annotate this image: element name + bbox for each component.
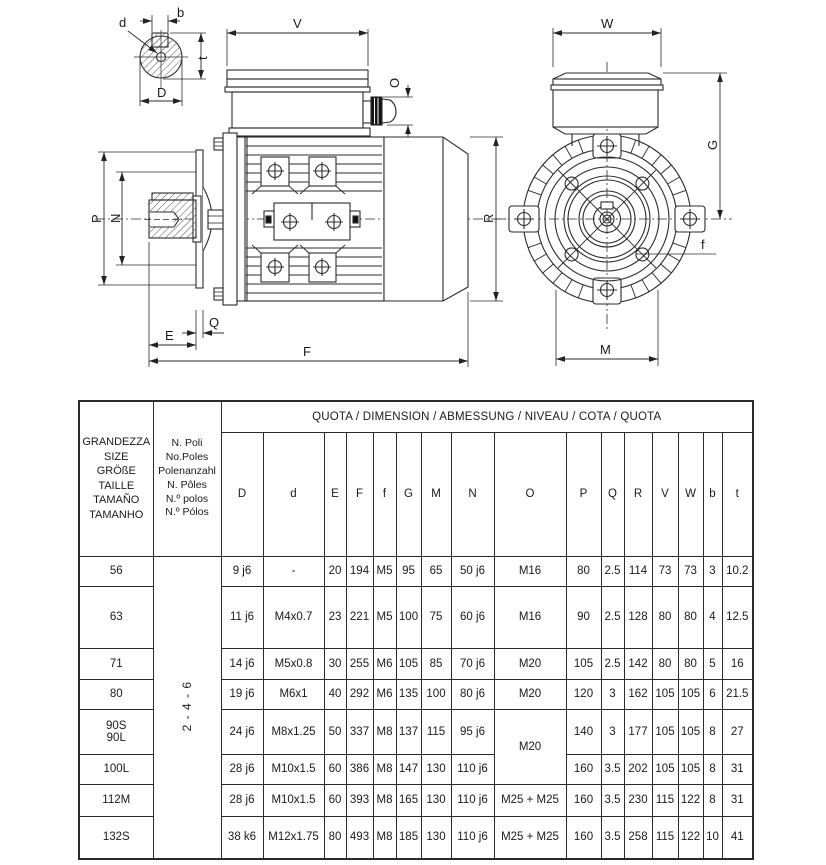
- table-cell: 73: [678, 556, 703, 586]
- col-header-F: F: [346, 432, 373, 556]
- table-cell: 185: [396, 816, 421, 859]
- table-cell: 230: [624, 784, 652, 816]
- table-cell: 11 j6: [221, 586, 263, 648]
- size-cell: 71: [79, 648, 153, 679]
- table-cell: M12x1.75: [263, 816, 324, 859]
- dim-label-b: b: [177, 5, 184, 20]
- table-cell: 2.5: [601, 556, 624, 586]
- table-cell: 255: [346, 648, 373, 679]
- size-cell: 132S: [79, 816, 153, 859]
- table-cell: 12.5: [722, 586, 753, 648]
- table-cell: 75: [421, 586, 451, 648]
- size-cell: 100L: [79, 754, 153, 784]
- cable-gland: [363, 97, 396, 125]
- table-cell: 105: [678, 754, 703, 784]
- table-cell: 41: [722, 816, 753, 859]
- table-cell: 9 j6: [221, 556, 263, 586]
- table-cell: 110 j6: [451, 816, 494, 859]
- table-cell: 65: [421, 556, 451, 586]
- table-cell: M16: [494, 586, 566, 648]
- table-cell: 24 j6: [221, 709, 263, 754]
- table-cell: 8: [703, 784, 722, 816]
- col-header-N: N: [451, 432, 494, 556]
- table-cell: 110 j6: [451, 784, 494, 816]
- table-cell: 3: [601, 679, 624, 709]
- table-cell: 31: [722, 784, 753, 816]
- table-cell: 23: [324, 586, 346, 648]
- table-cell: 4: [703, 586, 722, 648]
- table-cell: 122: [678, 784, 703, 816]
- table-cell: 177: [624, 709, 652, 754]
- motor-dimension-drawing: b d t D: [0, 0, 826, 398]
- dim-label-F: F: [303, 344, 311, 359]
- table-cell: M8: [373, 784, 396, 816]
- col-header-t: t: [722, 432, 753, 556]
- table-cell: 50 j6: [451, 556, 494, 586]
- table-cell: 105: [678, 679, 703, 709]
- table-cell: 115: [652, 816, 678, 859]
- dim-label-D: D: [157, 85, 166, 100]
- table-cell: 16: [722, 648, 753, 679]
- table-cell: 147: [396, 754, 421, 784]
- table-cell: 140: [566, 709, 601, 754]
- table-cell: 80: [678, 586, 703, 648]
- table-cell: 28 j6: [221, 754, 263, 784]
- table-cell: 105: [396, 648, 421, 679]
- col-header-Q: Q: [601, 432, 624, 556]
- table-cell: 85: [421, 648, 451, 679]
- table-cell: 393: [346, 784, 373, 816]
- table-cell: 21.5: [722, 679, 753, 709]
- table-cell: 135: [396, 679, 421, 709]
- table-cell: 40: [324, 679, 346, 709]
- table-cell: 8: [703, 709, 722, 754]
- poles-header: N. Poli No.Poles Polenanzahl N. Pôles N.…: [153, 401, 221, 556]
- shaft-section-view: b d t D: [119, 5, 210, 106]
- table-cell: 115: [421, 709, 451, 754]
- table-cell: 5: [703, 648, 722, 679]
- table-cell: 80: [566, 556, 601, 586]
- dim-label-P: P: [89, 214, 104, 223]
- table-cell: 100: [396, 586, 421, 648]
- table-cell: 19 j6: [221, 679, 263, 709]
- table-cell: 60: [324, 784, 346, 816]
- table-cell: M25 + M25: [494, 816, 566, 859]
- table-cell: 292: [346, 679, 373, 709]
- table-cell: 10.2: [722, 556, 753, 586]
- table-cell: 130: [421, 816, 451, 859]
- table-cell: 6: [703, 679, 722, 709]
- table-cell: 194: [346, 556, 373, 586]
- table-cell: 80: [652, 586, 678, 648]
- col-header-f: f: [373, 432, 396, 556]
- front-keyway: [601, 202, 613, 209]
- size-cell: 80: [79, 679, 153, 709]
- motor-front-view: W G f M: [495, 16, 732, 366]
- col-header-E: E: [324, 432, 346, 556]
- table-cell: 3.5: [601, 784, 624, 816]
- table-cell: 90: [566, 586, 601, 648]
- dim-label-d: d: [119, 15, 126, 30]
- col-header-R: R: [624, 432, 652, 556]
- table-cell: 95 j6: [451, 709, 494, 754]
- col-header-D: D: [221, 432, 263, 556]
- col-header-V: V: [652, 432, 678, 556]
- table-cell: 142: [624, 648, 652, 679]
- table-cell: 73: [652, 556, 678, 586]
- table-cell: M20: [494, 679, 566, 709]
- table-cell: 337: [346, 709, 373, 754]
- table-cell: M8: [373, 816, 396, 859]
- size-header-line: SIZE: [80, 450, 153, 465]
- table-cell: 3.5: [601, 816, 624, 859]
- table-cell: M8: [373, 754, 396, 784]
- col-header-M: M: [421, 432, 451, 556]
- table-header-row-1: GRANDEZZA SIZE GRÖßE TAILLE TAMAÑO TAMAN…: [79, 401, 753, 432]
- size-header-line: GRANDEZZA: [80, 435, 153, 450]
- table-cell: 10: [703, 816, 722, 859]
- quota-heading: QUOTA / DIMENSION / ABMESSUNG / NIVEAU /…: [221, 401, 753, 432]
- dim-label-V: V: [293, 16, 302, 31]
- table-cell: 3.5: [601, 754, 624, 784]
- table-cell: 80: [324, 816, 346, 859]
- table-cell: 95: [396, 556, 421, 586]
- table-cell: 3: [703, 556, 722, 586]
- table-cell: M20: [494, 648, 566, 679]
- table-cell: 165: [396, 784, 421, 816]
- table-cell: 20: [324, 556, 346, 586]
- keyway: [152, 33, 168, 47]
- table-cell: M8: [373, 709, 396, 754]
- table-cell: M10x1.5: [263, 784, 324, 816]
- table-cell: 27: [722, 709, 753, 754]
- table-cell: 160: [566, 816, 601, 859]
- table-cell: 122: [678, 816, 703, 859]
- poles-header-line: N. Poli: [154, 437, 221, 451]
- table-cell: 128: [624, 586, 652, 648]
- shaft-side: [145, 193, 223, 242]
- col-header-b: b: [703, 432, 722, 556]
- poles-header-line: N. Pôles: [154, 479, 221, 493]
- table-cell: 120: [566, 679, 601, 709]
- table-cell: M5: [373, 586, 396, 648]
- table-cell: M4x0.7: [263, 586, 324, 648]
- table-cell: 386: [346, 754, 373, 784]
- poles-value: 2 - 4 - 6: [180, 681, 194, 731]
- poles-header-line: N.º Pólos: [154, 506, 221, 520]
- col-header-W: W: [678, 432, 703, 556]
- table-cell: M5: [373, 556, 396, 586]
- table-cell: 80: [652, 648, 678, 679]
- table-cell: 38 k6: [221, 816, 263, 859]
- table-cell: 137: [396, 709, 421, 754]
- size-cell: 90S 90L: [79, 709, 153, 754]
- table-cell: 110 j6: [451, 754, 494, 784]
- table-cell: M10x1.5: [263, 754, 324, 784]
- table-cell: M16: [494, 556, 566, 586]
- dim-label-t: t: [195, 56, 210, 60]
- size-header-line: TAMAÑO: [80, 493, 153, 508]
- table-cell: 2.5: [601, 648, 624, 679]
- table-cell: 30: [324, 648, 346, 679]
- table-cell: 28 j6: [221, 784, 263, 816]
- table-cell: -: [263, 556, 324, 586]
- poles-header-line: N.º polos: [154, 493, 221, 507]
- dim-label-G: G: [705, 140, 720, 150]
- table-cell: 115: [652, 784, 678, 816]
- table-cell: 105: [566, 648, 601, 679]
- table-cell: 105: [652, 709, 678, 754]
- table-cell: 100: [421, 679, 451, 709]
- dim-label-O: O: [387, 78, 402, 88]
- size-header-line: TAMANHO: [80, 508, 153, 523]
- table-cell: 130: [421, 754, 451, 784]
- table-cell: 202: [624, 754, 652, 784]
- col-header-O: O: [494, 432, 566, 556]
- col-header-G: G: [396, 432, 421, 556]
- table-cell: M8x1.25: [263, 709, 324, 754]
- table-cell: 60 j6: [451, 586, 494, 648]
- table-cell: 493: [346, 816, 373, 859]
- table-cell: M25 + M25: [494, 784, 566, 816]
- dim-label-W: W: [601, 16, 614, 31]
- table-cell: 80: [678, 648, 703, 679]
- size-cell: 112M: [79, 784, 153, 816]
- table-cell-merged-O: M20: [494, 709, 566, 784]
- table-cell: 130: [421, 784, 451, 816]
- size-header-line: TAILLE: [80, 479, 153, 494]
- terminal-box-side: [225, 70, 370, 136]
- dim-label-Q: Q: [209, 315, 219, 330]
- poles-value-cell: 2 - 4 - 6: [153, 556, 221, 859]
- table-cell: 3: [601, 709, 624, 754]
- table-cell: M5x0.8: [263, 648, 324, 679]
- table-cell: 114: [624, 556, 652, 586]
- table-cell: 8: [703, 754, 722, 784]
- table-cell: 70 j6: [451, 648, 494, 679]
- nameplate: [264, 203, 360, 240]
- table-row: 56 2 - 4 - 6 9 j6 - 20 194 M5 95 65 50 j…: [79, 556, 753, 586]
- table-cell: M6: [373, 648, 396, 679]
- size-cell: 63: [79, 586, 153, 648]
- poles-header-line: Polenanzahl: [154, 465, 221, 479]
- poles-header-line: No.Poles: [154, 451, 221, 465]
- table-cell: 2.5: [601, 586, 624, 648]
- table-cell: 160: [566, 754, 601, 784]
- table-cell: 80 j6: [451, 679, 494, 709]
- table-cell: 105: [652, 754, 678, 784]
- dim-label-N: N: [108, 214, 123, 223]
- size-value: 90L: [80, 732, 153, 744]
- table-cell: 60: [324, 754, 346, 784]
- table-cell: 31: [722, 754, 753, 784]
- table-cell: M6: [373, 679, 396, 709]
- table-cell: 258: [624, 816, 652, 859]
- size-header-line: GRÖßE: [80, 464, 153, 479]
- dim-label-f: f: [701, 237, 705, 252]
- table-cell: 160: [566, 784, 601, 816]
- dimension-table: GRANDEZZA SIZE GRÖßE TAILLE TAMAÑO TAMAN…: [78, 400, 754, 860]
- table-cell: M6x1: [263, 679, 324, 709]
- table-cell: 162: [624, 679, 652, 709]
- size-cell: 56: [79, 556, 153, 586]
- table-cell: 50: [324, 709, 346, 754]
- dim-label-M: M: [600, 342, 611, 357]
- table-cell: 221: [346, 586, 373, 648]
- size-value: 90S: [80, 720, 153, 732]
- dim-label-R: R: [481, 214, 496, 223]
- col-header-d: d: [263, 432, 324, 556]
- size-header: GRANDEZZA SIZE GRÖßE TAILLE TAMAÑO TAMAN…: [79, 401, 153, 556]
- fan-cover: [384, 137, 468, 301]
- table-cell: 105: [652, 679, 678, 709]
- col-header-P: P: [566, 432, 601, 556]
- catalog-page: b d t D: [0, 0, 826, 865]
- table-cell: 105: [678, 709, 703, 754]
- dim-label-E: E: [165, 328, 174, 343]
- table-cell: 14 j6: [221, 648, 263, 679]
